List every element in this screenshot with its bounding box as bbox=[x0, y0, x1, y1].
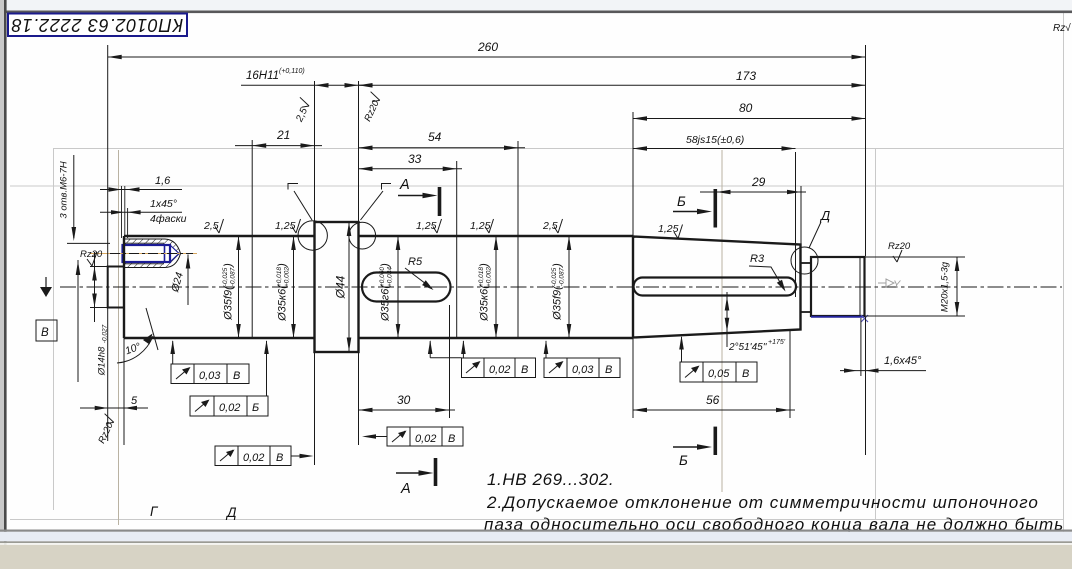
svg-text:3 отв.М6-7Н: 3 отв.М6-7Н bbox=[59, 161, 70, 218]
svg-text:Д: Д bbox=[819, 208, 830, 223]
svg-text:+175': +175' bbox=[768, 339, 786, 346]
svg-text:В: В bbox=[233, 370, 240, 382]
svg-text:0,02: 0,02 bbox=[489, 364, 510, 376]
svg-text:260: 260 bbox=[477, 40, 498, 54]
svg-text:В: В bbox=[605, 364, 612, 376]
svg-text:1,6: 1,6 bbox=[155, 175, 171, 187]
svg-text:0,03: 0,03 bbox=[572, 364, 594, 376]
svg-text:Ø35f9(: Ø35f9( bbox=[552, 285, 564, 321]
svg-text:Ø35г6(: Ø35г6( bbox=[380, 284, 392, 322]
svg-text:Б: Б bbox=[252, 402, 259, 414]
svg-text:-0,087: -0,087 bbox=[559, 267, 566, 286]
svg-text:Ø35к6(: Ø35к6( bbox=[277, 284, 289, 322]
svg-text:Ø35f9(: Ø35f9( bbox=[223, 285, 235, 321]
svg-text:В: В bbox=[276, 452, 283, 464]
svg-text:0,02: 0,02 bbox=[415, 433, 436, 445]
svg-text:0,03: 0,03 bbox=[199, 370, 221, 382]
svg-text:А: А bbox=[400, 481, 411, 497]
svg-text:R5: R5 bbox=[408, 256, 423, 268]
svg-text:56: 56 bbox=[706, 393, 720, 407]
svg-text:+0,002: +0,002 bbox=[486, 267, 493, 287]
svg-text:1,25: 1,25 bbox=[470, 220, 491, 232]
svg-text:1х45°: 1х45° bbox=[150, 198, 177, 210]
svg-text:Y: Y bbox=[893, 279, 901, 291]
svg-text:80: 80 bbox=[739, 101, 753, 115]
svg-text:16Н11: 16Н11 bbox=[246, 70, 279, 82]
svg-text:Rz20: Rz20 bbox=[888, 241, 911, 252]
svg-text:54: 54 bbox=[428, 130, 442, 144]
svg-text:+0,002: +0,002 bbox=[284, 267, 291, 287]
svg-text:(+0,110): (+0,110) bbox=[279, 68, 305, 75]
svg-text:0,02: 0,02 bbox=[219, 402, 240, 414]
svg-text:Б: Б bbox=[679, 453, 688, 468]
svg-text:Д: Д bbox=[225, 505, 237, 520]
svg-text:В: В bbox=[742, 368, 749, 380]
svg-text:Ø44: Ø44 bbox=[334, 275, 348, 299]
svg-text:33: 33 bbox=[408, 152, 422, 166]
svg-text:1,25: 1,25 bbox=[658, 223, 679, 235]
svg-text:0,05: 0,05 bbox=[708, 368, 730, 380]
svg-text:-0,087: -0,087 bbox=[230, 267, 237, 286]
svg-text:21: 21 bbox=[276, 128, 290, 142]
svg-text:5: 5 bbox=[131, 395, 138, 407]
svg-text:2,5: 2,5 bbox=[203, 220, 219, 232]
svg-text:29: 29 bbox=[751, 175, 766, 189]
svg-text:Ø35к6(: Ø35к6( bbox=[479, 284, 491, 322]
svg-text:30: 30 bbox=[397, 393, 411, 407]
svg-text:В: В bbox=[521, 364, 528, 376]
svg-text:2°51'45'': 2°51'45'' bbox=[728, 342, 768, 353]
svg-text:1,25: 1,25 bbox=[275, 220, 296, 232]
svg-text:2.Допускаемое отклонение от: 2.Допускаемое отклонение от симметричнос… bbox=[486, 493, 1039, 512]
svg-text:Б: Б bbox=[677, 194, 686, 209]
svg-text:1.НВ 269...302.: 1.НВ 269...302. bbox=[487, 470, 614, 489]
svg-text:4фаски: 4фаски bbox=[150, 213, 187, 225]
svg-text:+0,018: +0,018 bbox=[478, 267, 485, 287]
svg-text:0,02: 0,02 bbox=[243, 452, 264, 464]
svg-text:М20х1,5-3g: М20х1,5-3g bbox=[940, 261, 951, 312]
svg-text:173: 173 bbox=[736, 69, 756, 83]
svg-text:А: А bbox=[399, 177, 410, 193]
svg-text:58js15(±0,6): 58js15(±0,6) bbox=[686, 134, 744, 146]
svg-text:-0,027: -0,027 bbox=[102, 324, 109, 343]
svg-text:В: В bbox=[448, 433, 455, 445]
svg-text:+0,034: +0,034 bbox=[387, 267, 394, 287]
svg-text:Rz√: Rz√ bbox=[1053, 22, 1071, 34]
svg-text:Rz20: Rz20 bbox=[80, 249, 103, 260]
svg-text:-0,025: -0,025 bbox=[551, 267, 558, 286]
svg-text:+0,060: +0,060 bbox=[379, 267, 386, 287]
svg-text:R3: R3 bbox=[750, 253, 765, 265]
svg-text:В: В bbox=[41, 327, 49, 339]
svg-text:2,5: 2,5 bbox=[542, 220, 558, 232]
svg-text:1,6х45°: 1,6х45° bbox=[884, 355, 922, 367]
svg-text:-0,025: -0,025 bbox=[222, 267, 229, 286]
svg-text:Ø14h8: Ø14h8 bbox=[97, 346, 108, 376]
svg-text:КП0102.63 2222.18: КП0102.63 2222.18 bbox=[11, 15, 183, 35]
svg-text:+0,018: +0,018 bbox=[276, 267, 283, 287]
svg-text:1,25: 1,25 bbox=[416, 220, 437, 232]
